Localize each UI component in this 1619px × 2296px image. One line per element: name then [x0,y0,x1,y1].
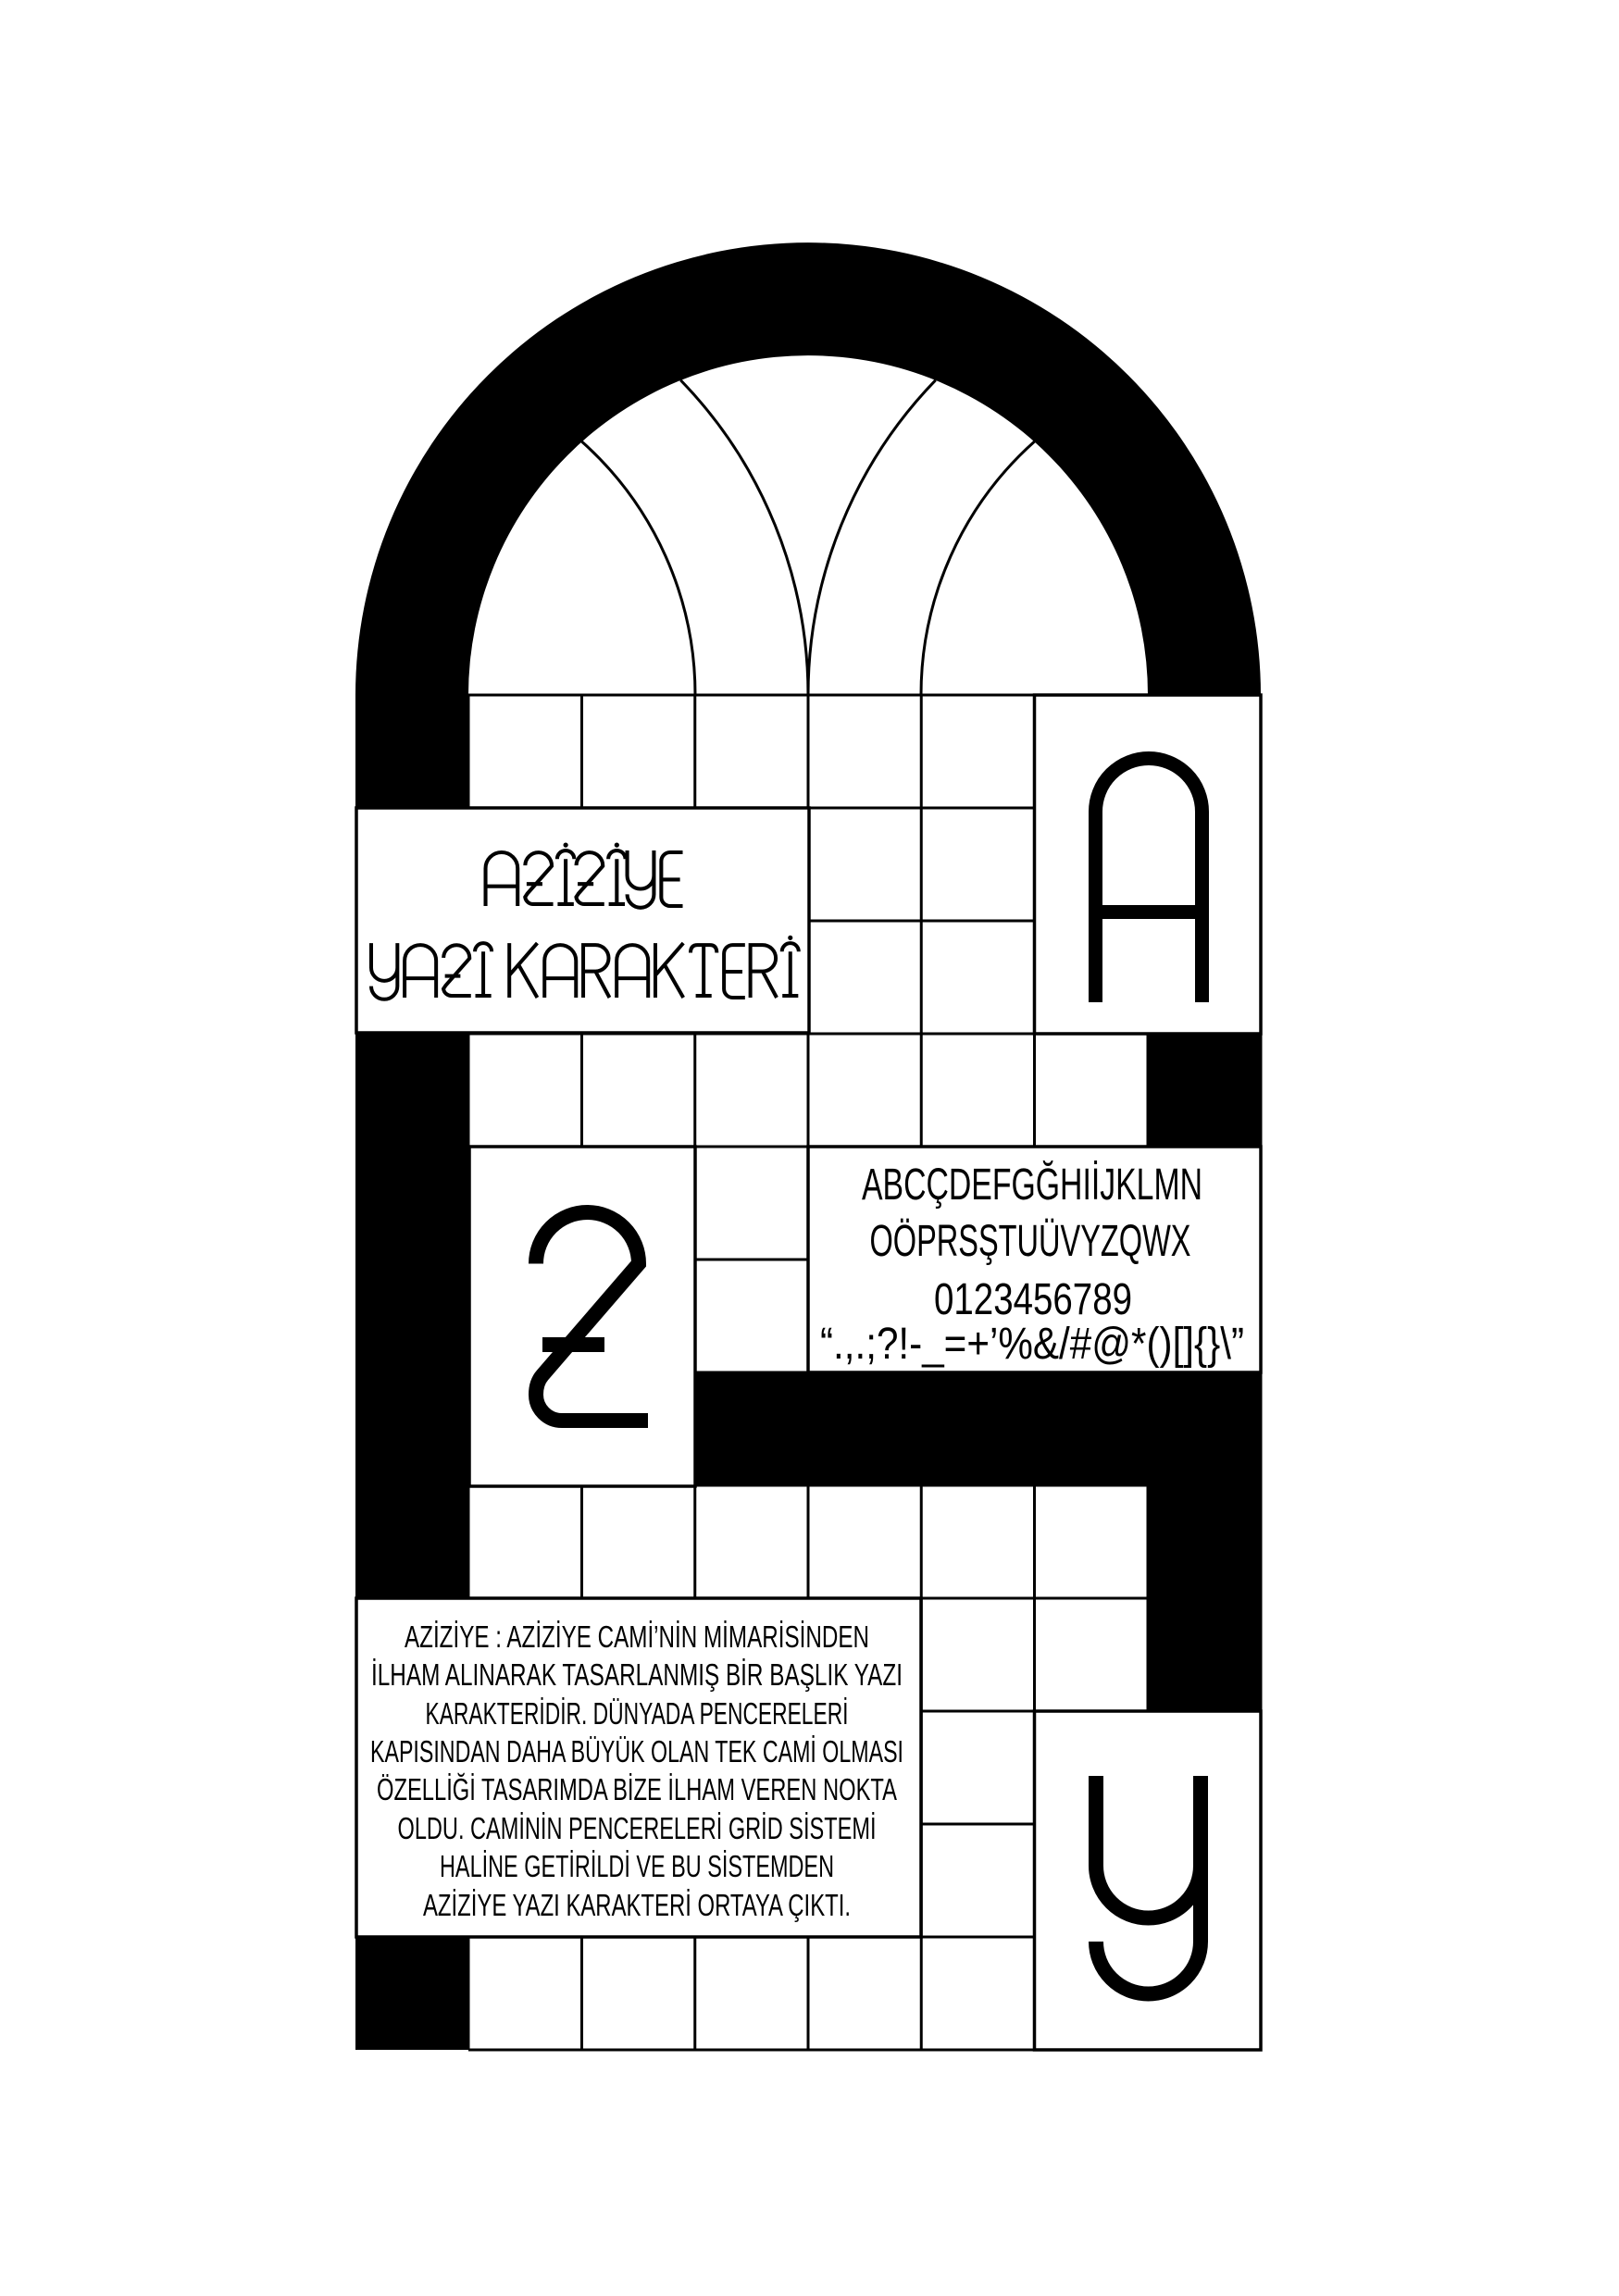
svg-text:“.,.;?!-_=+’%&/#@*()[]{}\”: “.,.;?!-_=+’%&/#@*()[]{}\” [820,1320,1244,1369]
svg-text:AZİZİYE : AZİZİYE CAMİ’NİN MİM: AZİZİYE : AZİZİYE CAMİ’NİN MİMARİSİNDEN [405,1620,869,1654]
svg-text:ÖZELLİĞİ TASARIMDA BİZE İLHAM: ÖZELLİĞİ TASARIMDA BİZE İLHAM VEREN NOKT… [377,1772,897,1806]
svg-text:HALİNE GETİRİLDİ VE BU SİSTEMD: HALİNE GETİRİLDİ VE BU SİSTEMDEN [440,1849,834,1883]
svg-text:AZİZİYE YAZI KARAKTERİ ORTAYA: AZİZİYE YAZI KARAKTERİ ORTAYA ÇIKTI. [423,1888,851,1922]
svg-text:OLDU. CAMİNİN PENCERELERİ GRİD: OLDU. CAMİNİN PENCERELERİ GRİD SİSTEMİ [398,1811,877,1845]
svg-text:OÖPRSŞTUÜVYZQWX: OÖPRSŞTUÜVYZQWX [870,1217,1191,1266]
svg-text:İLHAM ALINARAK TASARLANMIŞ BİR: İLHAM ALINARAK TASARLANMIŞ BİR BAŞLIK YA… [371,1657,903,1692]
svg-text:KARAKTERİDİR. DÜNYADA PENCEREL: KARAKTERİDİR. DÜNYADA PENCERELERİ [426,1696,849,1731]
svg-text:KAPISINDAN DAHA BÜYÜK OLAN TEK: KAPISINDAN DAHA BÜYÜK OLAN TEK CAMİ OLMA… [370,1734,903,1769]
svg-text:ABCÇDEFGĞHIİJKLMN: ABCÇDEFGĞHIİJKLMN [862,1160,1202,1210]
svg-text:0123456789: 0123456789 [934,1275,1132,1324]
